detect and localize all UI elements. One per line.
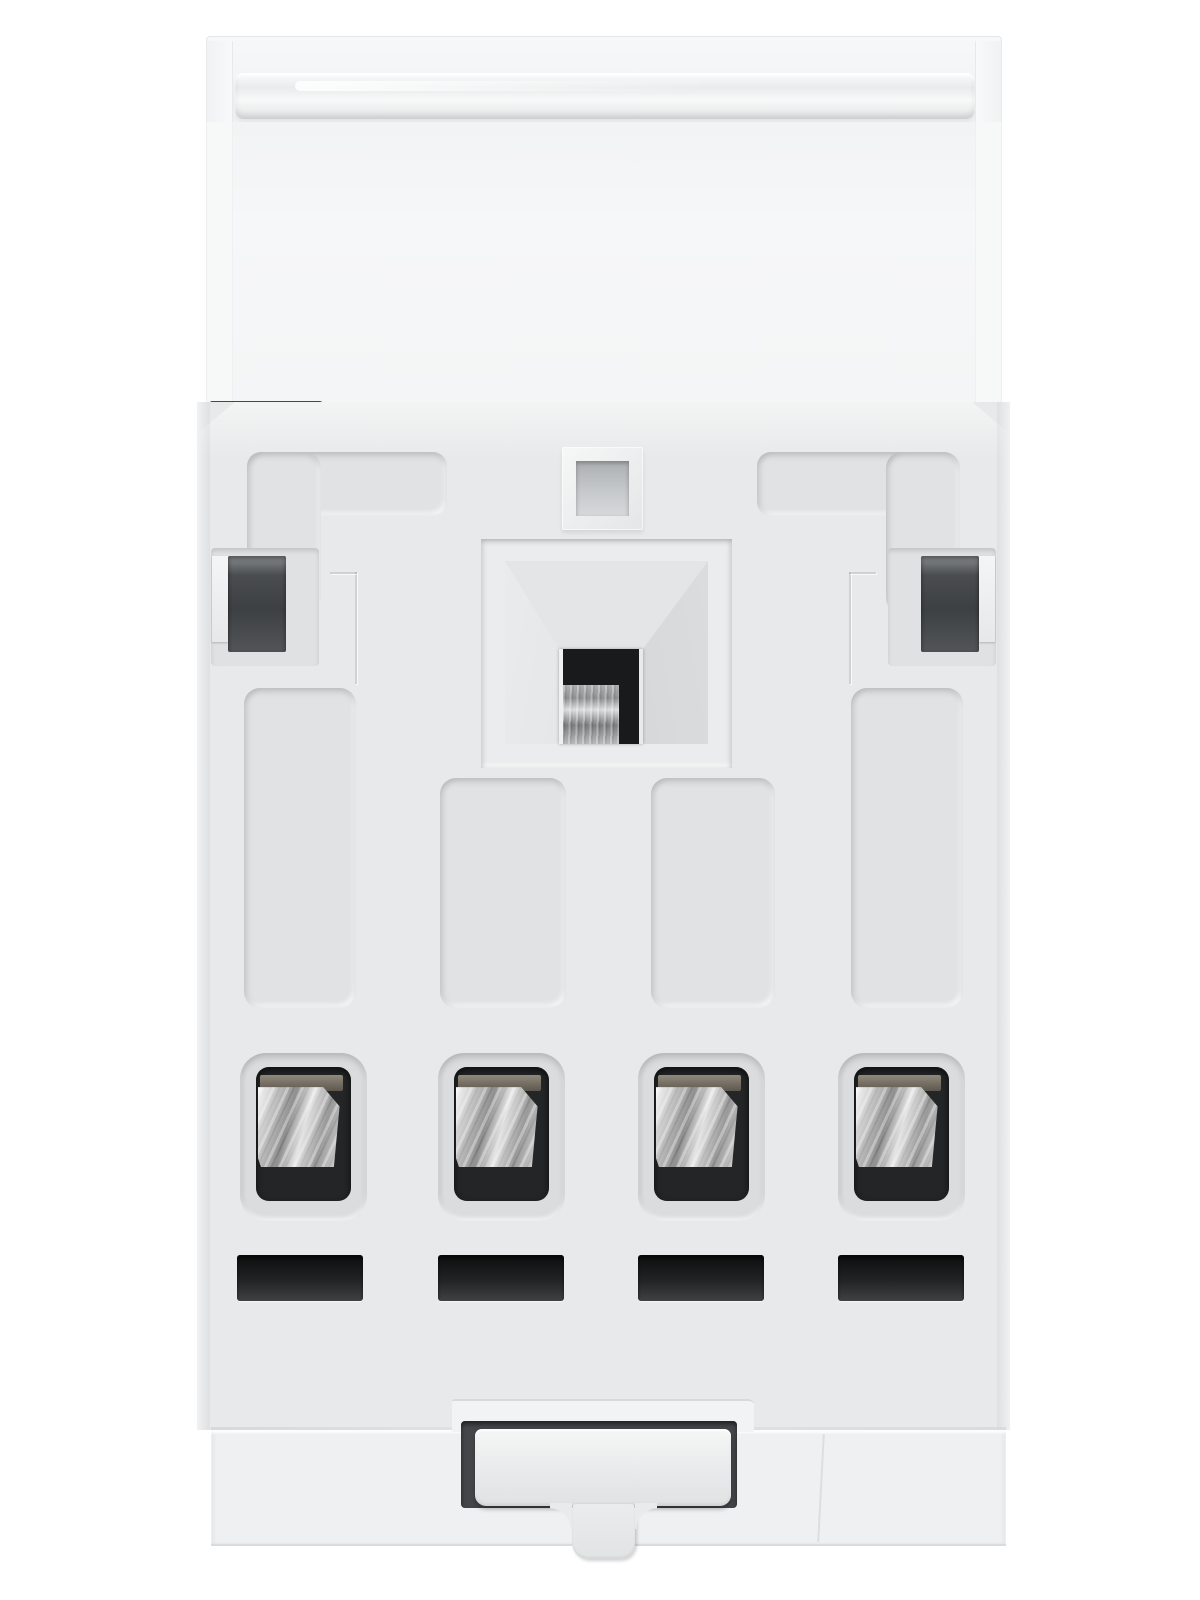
terminal-opening-3 (638, 1053, 765, 1221)
vent-slot-1 (237, 1255, 363, 1301)
clear-label-flap (206, 36, 1002, 122)
terminal-opening-2 (438, 1053, 565, 1221)
vertical-groove-mid-left (440, 778, 566, 1008)
flap-glare-highlight (295, 81, 715, 91)
terminal-opening-1 (240, 1053, 367, 1221)
terminal-cavity-1 (256, 1067, 351, 1201)
screw-funnel-recess (481, 539, 732, 768)
vertical-groove-outer-left (244, 688, 356, 1008)
steel-clamp-1 (258, 1087, 340, 1167)
body-side-wall-left (197, 402, 210, 1430)
small-fixing-hole (562, 447, 643, 530)
vent-slot-4 (838, 1255, 964, 1301)
latch-opening-right (921, 556, 979, 652)
product-photo-scene (0, 0, 1200, 1600)
label-face-edge-right (975, 122, 1001, 402)
latch-tab-right (979, 556, 995, 642)
terminal-opening-4 (838, 1053, 965, 1221)
terminal-cavity-3 (654, 1067, 749, 1201)
molding-step-right-top (849, 572, 876, 574)
din-rail-clip (475, 1429, 731, 1506)
terminal-cavity-2 (454, 1067, 549, 1201)
steel-clamp-3 (656, 1087, 738, 1167)
steel-clamp-2 (456, 1087, 538, 1167)
mounting-face-body (197, 402, 1010, 1430)
latch-opening-left (228, 556, 286, 652)
terminal-screw-hole (559, 649, 643, 744)
small-fixing-hole-inner (576, 461, 629, 516)
molding-step-right (849, 572, 851, 684)
funnel-inner (505, 561, 708, 744)
label-face (206, 122, 1002, 402)
latch-tab-left (212, 556, 228, 642)
vent-slot-2 (438, 1255, 564, 1301)
body-side-wall-right (997, 402, 1010, 1430)
label-holder-assembly (206, 36, 1002, 402)
steel-clamp-4 (856, 1087, 938, 1167)
flap-hinge-band (235, 73, 975, 119)
vent-slot-3 (638, 1255, 764, 1301)
molding-step-left (355, 572, 357, 684)
label-face-edge-left (207, 122, 233, 402)
din-clip-release-tab (572, 1504, 635, 1559)
terminal-cavity-4 (854, 1067, 949, 1201)
molding-step-left-top (330, 572, 357, 574)
terminal-screw-metal (563, 685, 619, 744)
vertical-groove-outer-right (851, 688, 963, 1008)
vertical-groove-mid-right (651, 778, 775, 1008)
